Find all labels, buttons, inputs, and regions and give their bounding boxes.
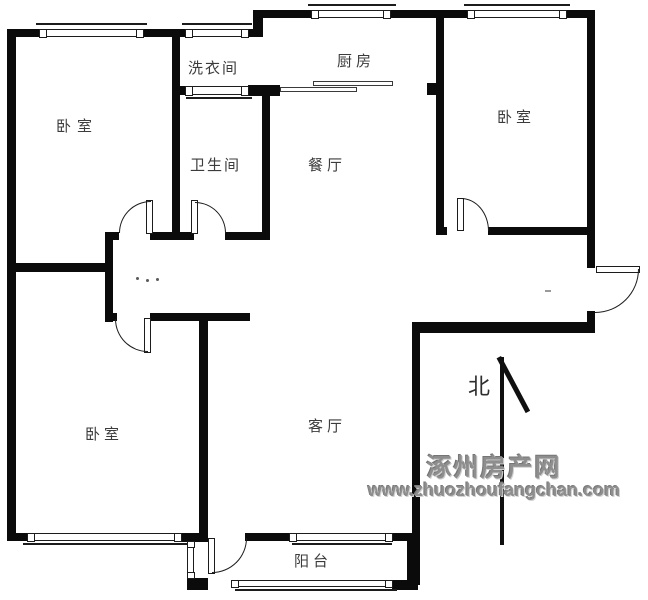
window-sill [182, 23, 252, 25]
wall-segment [181, 533, 208, 542]
window [186, 29, 248, 37]
hallway-mark [136, 277, 139, 280]
north-arrow [500, 357, 504, 545]
window [290, 533, 392, 541]
wall-segment [245, 533, 290, 541]
door-swing-arc [461, 198, 489, 231]
wall-segment [10, 263, 105, 272]
door-swing-arc [595, 269, 639, 313]
window-sill [36, 23, 147, 25]
wall-segment [262, 85, 270, 240]
window [28, 533, 181, 541]
wall-segment [199, 313, 208, 540]
door-swing-arc [115, 319, 148, 352]
room-label-bedroom-nw: 卧室 [56, 120, 98, 135]
window [187, 542, 194, 578]
watermark-site-name: 涿州房产网 [360, 455, 628, 481]
hallway-mark [545, 290, 551, 292]
hallway-mark [146, 279, 149, 282]
window-sill [186, 97, 252, 99]
window [312, 10, 390, 18]
wall-segment [253, 10, 312, 18]
window [232, 580, 392, 587]
window-sill [235, 589, 397, 591]
wall-segment [413, 322, 595, 333]
room-label-dining: 餐厅 [308, 159, 346, 174]
hallway-mark [156, 278, 159, 281]
watermark: 涿州房产网 www.zhuozhoufangchan.com [360, 455, 628, 501]
door-swing-arc [212, 538, 247, 573]
window [40, 29, 143, 37]
room-label-kitchen: 厨房 [337, 55, 375, 70]
window-sill [23, 543, 187, 545]
room-label-bedroom-sw: 卧室 [85, 428, 123, 443]
wall-segment [436, 10, 444, 235]
sliding-door-panel [280, 87, 357, 92]
wall-segment [150, 232, 194, 240]
window [186, 86, 248, 95]
wall-segment [436, 227, 447, 235]
wall-segment [390, 10, 468, 18]
window [468, 10, 566, 18]
window-sill [292, 543, 392, 545]
wall-segment [7, 29, 16, 540]
room-label-living: 客厅 [308, 420, 346, 435]
wall-segment [172, 29, 180, 240]
wall-segment [105, 232, 113, 322]
wall-segment [7, 533, 28, 541]
window-sill [464, 4, 570, 6]
north-label: 北 [468, 376, 490, 398]
wall-segment [407, 533, 418, 590]
window-sill [308, 4, 396, 6]
floorplan-canvas: 卧室 洗衣间 厨房 卧室 卫生间 餐厅 卧室 客厅 阳台 北 涿州房产网 www… [0, 0, 648, 600]
wall-segment [187, 578, 208, 590]
room-label-bathroom: 卫生间 [190, 159, 241, 174]
room-label-bedroom-ne: 卧室 [497, 111, 535, 126]
door-swing-arc [195, 202, 226, 233]
watermark-url: www.zhuozhoufangchan.com [360, 481, 628, 501]
wall-segment [172, 86, 186, 95]
wall-segment [587, 10, 595, 268]
wall-segment [225, 232, 270, 240]
room-label-balcony: 阳台 [294, 555, 332, 570]
room-label-laundry: 洗衣间 [188, 62, 239, 77]
door-swing-arc [119, 201, 151, 233]
sliding-door-panel [313, 81, 393, 86]
wall-segment [488, 227, 588, 235]
